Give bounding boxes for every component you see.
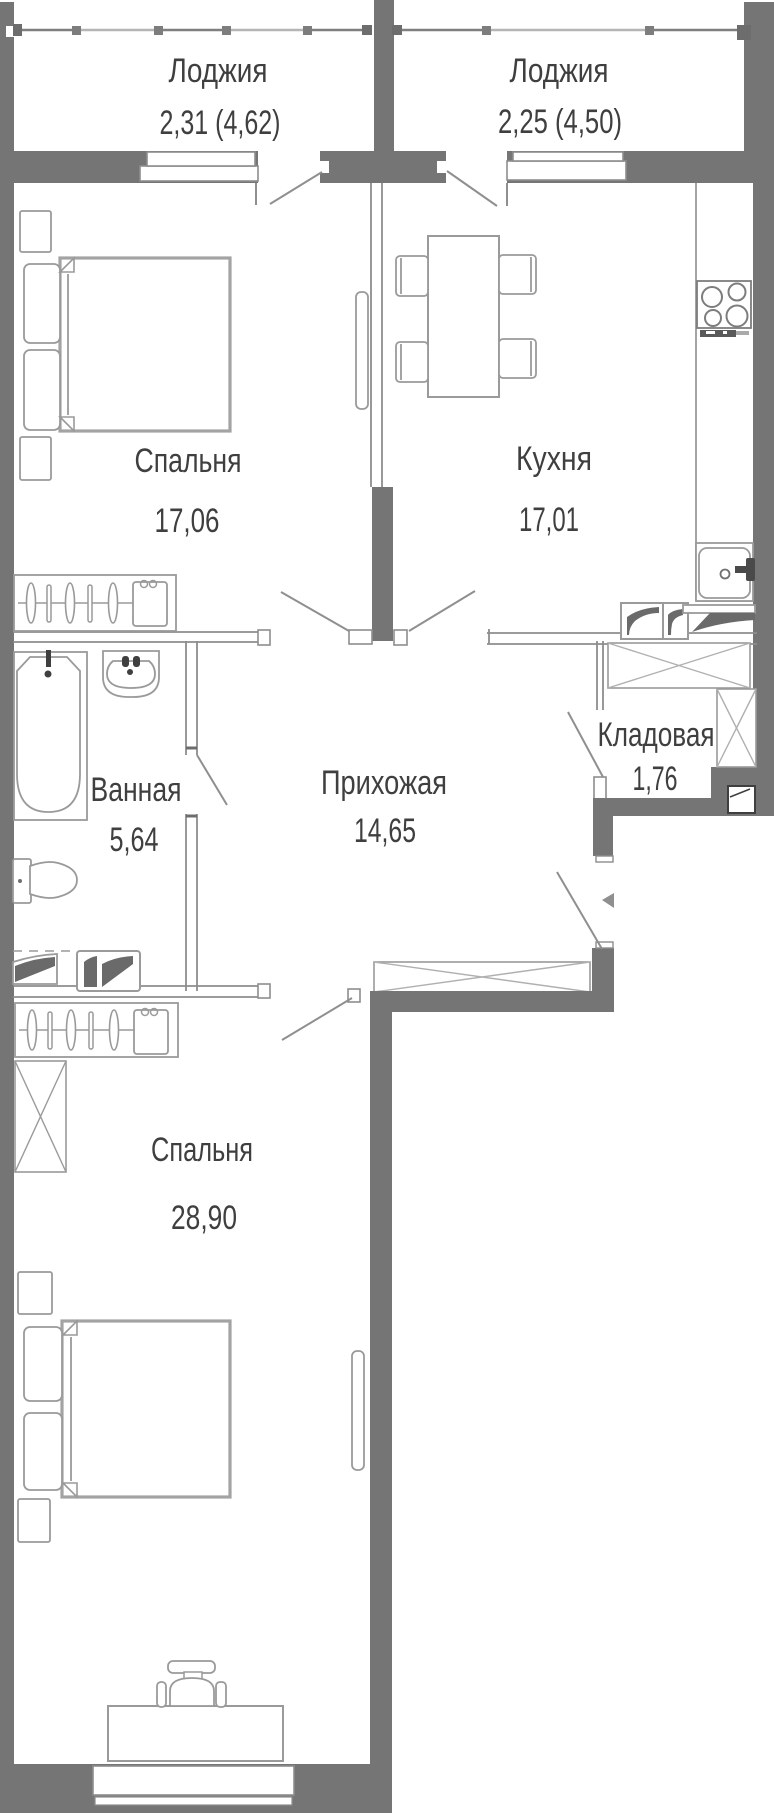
svg-text:2,25 (4,50): 2,25 (4,50) (498, 103, 622, 141)
svg-text:14,65: 14,65 (354, 812, 416, 850)
svg-text:Лоджия: Лоджия (510, 52, 609, 90)
svg-text:1,76: 1,76 (633, 760, 678, 798)
svg-text:17,01: 17,01 (519, 501, 579, 539)
svg-text:Спальня: Спальня (151, 1131, 253, 1169)
svg-text:2,31 (4,62): 2,31 (4,62) (160, 104, 281, 142)
svg-text:Кухня: Кухня (516, 440, 592, 478)
svg-text:Кладовая: Кладовая (598, 716, 715, 754)
svg-text:Ванная: Ванная (91, 771, 182, 809)
svg-text:Спальня: Спальня (135, 442, 242, 480)
svg-text:17,06: 17,06 (155, 502, 220, 540)
svg-text:Лоджия: Лоджия (169, 52, 268, 90)
svg-text:Прихожая: Прихожая (321, 764, 447, 802)
svg-text:5,64: 5,64 (110, 821, 159, 859)
svg-text:28,90: 28,90 (171, 1199, 237, 1237)
